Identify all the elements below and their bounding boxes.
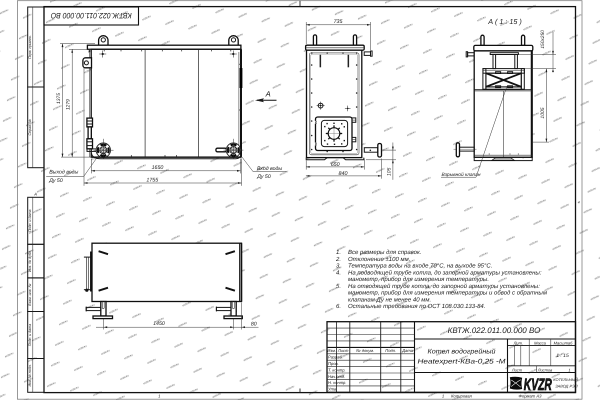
- svg-text:4: 4: [578, 201, 580, 205]
- svg-text:1755: 1755: [146, 177, 158, 183]
- svg-text:Heatexpert-КВа-0,25 -М: Heatexpert-КВа-0,25 -М: [418, 359, 506, 366]
- svg-text:Взам. инв. №: Взам. инв. №: [28, 283, 32, 305]
- svg-text:Температура воды на входе 70°С: Температура воды на входе 70°С, на выход…: [348, 263, 492, 270]
- svg-text:манометр, прибор для измерения: манометр, прибор для измерения температу…: [348, 276, 489, 283]
- svg-text:1005: 1005: [540, 107, 546, 118]
- svg-text:А: А: [265, 90, 271, 99]
- svg-text:Формат А3: Формат А3: [519, 393, 543, 398]
- svg-text:Масштаб: Масштаб: [554, 340, 573, 345]
- svg-text:3.: 3.: [336, 263, 341, 270]
- svg-text:Выход воды: Выход воды: [49, 170, 78, 176]
- svg-text:Лит.: Лит.: [513, 340, 523, 345]
- svg-text:4.: 4.: [336, 269, 341, 276]
- svg-text:Все размеры для справок.: Все размеры для справок.: [348, 249, 422, 256]
- svg-text:манометр, прибор для измерения: манометр, прибор для измерения температу…: [348, 290, 547, 297]
- svg-text:Справ. №: Справ. №: [28, 119, 32, 135]
- svg-text:1450: 1450: [153, 321, 165, 327]
- svg-text:2.: 2.: [335, 256, 341, 263]
- svg-text:1650: 1650: [152, 165, 164, 171]
- svg-text:Отклонение ±100 мм.: Отклонение ±100 мм.: [348, 256, 410, 263]
- svg-text:80: 80: [251, 322, 257, 328]
- svg-text:1 : 15: 1 : 15: [556, 353, 569, 359]
- svg-text:Инв. № подл.: Инв. № подл.: [28, 364, 32, 386]
- svg-text:1: 1: [158, 393, 160, 398]
- svg-text:Перв. примен.: Перв. примен.: [28, 35, 32, 59]
- svg-text:Изм.: Изм.: [327, 348, 336, 353]
- svg-text:А ( 1 : 15 ): А ( 1 : 15 ): [487, 17, 522, 26]
- svg-text:Взрывной клапан: Взрывной клапан: [442, 172, 481, 178]
- svg-text:Подп. и дата: Подп. и дата: [28, 210, 32, 233]
- svg-text:Инв. № дубл.: Инв. № дубл.: [28, 250, 32, 272]
- svg-text:Подп.: Подп.: [385, 348, 396, 353]
- svg-text:ЗАВОД РЭП: ЗАВОД РЭП: [555, 383, 578, 388]
- svg-text:Лист: Лист: [337, 348, 349, 353]
- svg-text:Копировал: Копировал: [451, 393, 472, 398]
- svg-text:735: 735: [334, 19, 343, 25]
- svg-text:На подводящей трубе котла, до: На подводящей трубе котла, до запорной а…: [348, 269, 542, 276]
- svg-text:KVZR: KVZR: [524, 376, 552, 394]
- svg-text:Ду 50: Ду 50: [48, 178, 63, 184]
- svg-text:1375: 1375: [56, 93, 62, 104]
- svg-text:5.: 5.: [336, 283, 341, 290]
- svg-text:1: 1: [568, 367, 570, 372]
- svg-text:Лист: Лист: [511, 367, 523, 372]
- svg-text:Дата: Дата: [401, 348, 414, 353]
- svg-text:150х250: 150х250: [540, 30, 546, 49]
- svg-text:№ докум.: № докум.: [356, 348, 374, 353]
- svg-text:Нач.отд.: Нач.отд.: [328, 374, 345, 379]
- svg-text:А: А: [33, 191, 37, 196]
- svg-text:650: 650: [331, 162, 340, 168]
- svg-text:Пров.: Пров.: [328, 361, 339, 366]
- svg-text:840: 840: [339, 171, 348, 177]
- svg-text:Масса: Масса: [534, 340, 547, 345]
- svg-text:КОТЕЛЬНЫЙ: КОТЕЛЬНЫЙ: [553, 377, 578, 382]
- svg-text:Котел водогрейный: Котел водогрейный: [428, 348, 496, 356]
- svg-text:КВТЖ.022.011.00.000 ВО: КВТЖ.022.011.00.000 ВО: [448, 326, 541, 335]
- svg-text:клапанам Ду не менее 40 мм.: клапанам Ду не менее 40 мм.: [348, 296, 431, 303]
- svg-text:Н. контр.: Н. контр.: [328, 380, 346, 385]
- svg-text:Утв.: Утв.: [328, 387, 337, 392]
- svg-text:Подп. и дата: Подп. и дата: [28, 324, 32, 347]
- svg-text:Разраб.: Разраб.: [328, 355, 343, 360]
- svg-text:1.: 1.: [336, 249, 341, 256]
- svg-text:1: 1: [442, 393, 444, 398]
- svg-text:6.: 6.: [336, 303, 341, 310]
- svg-text:1279: 1279: [65, 99, 71, 110]
- svg-text:На отводящей трубе котла, до з: На отводящей трубе котла, до запорной ар…: [348, 283, 540, 290]
- svg-text:КВТЖ.022.011.00.000 ВО: КВТЖ.022.011.00.000 ВО: [51, 11, 132, 20]
- svg-text:Остальные требования по ОСТ 10: Остальные требования по ОСТ 108.030.133-…: [348, 303, 485, 310]
- svg-text:Листов: Листов: [537, 367, 553, 372]
- svg-text:Т. контр.: Т. контр.: [328, 367, 346, 372]
- svg-text:Ду 50: Ду 50: [256, 174, 271, 180]
- svg-text:105: 105: [386, 167, 392, 176]
